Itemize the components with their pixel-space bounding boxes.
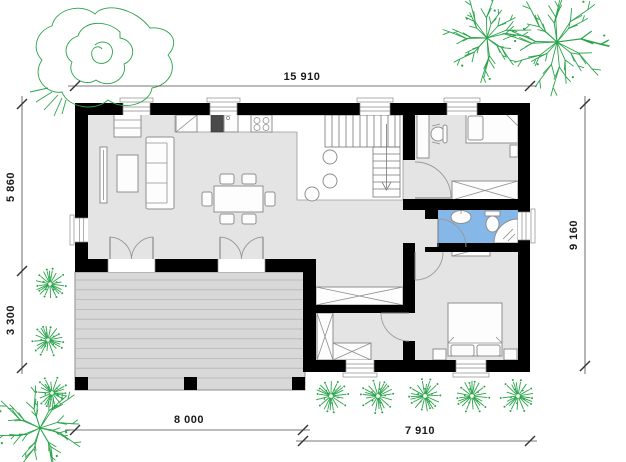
round-bush-icon — [36, 268, 67, 298]
dim-label-bottom-left: 8 000 — [174, 414, 204, 426]
nightstand — [510, 145, 518, 157]
window-icon — [518, 209, 535, 243]
washbasin — [451, 211, 471, 224]
fern-tree-icon — [443, 0, 532, 83]
window-icon — [343, 360, 377, 377]
floor-plan-canvas: 15 910 5 860 3 300 9 160 8 000 7 910 — [0, 0, 626, 462]
round-bush-icon — [456, 381, 490, 413]
window-icon — [444, 98, 480, 115]
round-bush-icon — [316, 381, 349, 413]
dining-table — [214, 186, 263, 212]
round-bush-icon — [35, 377, 66, 407]
fern-tree-icon — [0, 385, 81, 462]
kitchen-sink — [211, 113, 238, 132]
dimension-right: 9 160 — [568, 96, 590, 374]
toilet — [485, 211, 500, 232]
wardrobe-crossed — [452, 181, 518, 200]
cabinet — [114, 112, 141, 137]
fridge-icon — [176, 115, 197, 132]
pillow — [468, 116, 483, 140]
round-bush-icon — [31, 326, 64, 356]
dimension-left: 5 860 3 300 — [5, 96, 27, 374]
dim-label-left-lower: 3 300 — [5, 305, 17, 335]
nightstand — [433, 349, 446, 360]
window-icon — [207, 98, 240, 115]
dim-label-right: 9 160 — [568, 220, 580, 250]
dim-label-bottom-right: 7 910 — [405, 425, 435, 437]
dimension-bottom-left: 8 000 — [65, 414, 310, 435]
desk — [417, 114, 429, 158]
round-bush-icon — [360, 380, 394, 414]
dim-label-top: 15 910 — [284, 71, 321, 83]
round-bush-icon — [408, 378, 441, 411]
stove-hob — [251, 115, 272, 132]
window-icon — [357, 98, 393, 115]
coffee-table — [117, 155, 138, 192]
dimension-bottom-right: 7 910 — [296, 425, 537, 446]
dim-label-left-upper: 5 860 — [5, 172, 17, 202]
floor-plan-svg: 15 910 5 860 3 300 9 160 8 000 7 910 — [0, 0, 626, 462]
nightstand — [504, 349, 517, 360]
window-icon — [453, 360, 489, 377]
fern-tree-icon — [503, 0, 610, 96]
window-icon — [70, 215, 88, 245]
round-bush-icon — [500, 379, 533, 412]
pillow — [451, 345, 474, 356]
window-icon — [120, 98, 153, 115]
pillow — [477, 345, 500, 356]
dimension-top: 15 910 — [68, 71, 537, 91]
tv-unit — [100, 147, 107, 203]
hall-wardrobe — [316, 287, 403, 305]
terrace-deck — [75, 272, 305, 390]
sofa — [146, 137, 174, 209]
